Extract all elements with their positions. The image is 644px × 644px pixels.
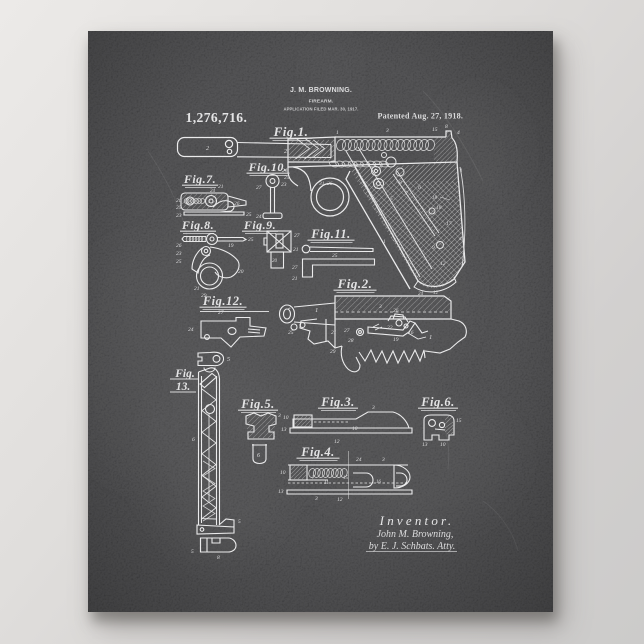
svg-text:21: 21 [293, 247, 299, 253]
svg-text:7: 7 [405, 191, 408, 197]
svg-text:25: 25 [288, 330, 294, 336]
svg-text:3: 3 [371, 405, 375, 411]
svg-text:19: 19 [228, 243, 234, 249]
svg-text:4: 4 [457, 129, 460, 136]
svg-text:Fig.3.: Fig.3. [320, 395, 355, 409]
svg-text:18: 18 [432, 196, 438, 201]
svg-text:6: 6 [192, 437, 195, 443]
svg-text:21: 21 [292, 276, 298, 282]
svg-text:13: 13 [278, 489, 284, 495]
svg-text:23: 23 [281, 182, 287, 188]
svg-text:Fig.: Fig. [174, 368, 195, 380]
svg-text:19: 19 [393, 337, 399, 343]
svg-text:8: 8 [445, 124, 448, 130]
svg-text:2: 2 [284, 149, 287, 155]
svg-text:21: 21 [218, 184, 224, 190]
svg-text:27: 27 [292, 265, 298, 271]
svg-text:24: 24 [210, 189, 216, 194]
svg-text:5: 5 [390, 196, 393, 202]
svg-text:26: 26 [234, 201, 240, 207]
svg-text:Fig.7.: Fig.7. [183, 172, 216, 186]
svg-text:27: 27 [294, 233, 300, 239]
svg-text:16: 16 [376, 480, 382, 485]
svg-text:12: 12 [433, 291, 439, 296]
svg-text:20: 20 [272, 259, 278, 264]
svg-text:12: 12 [334, 439, 340, 445]
svg-text:15: 15 [432, 127, 438, 133]
svg-text:10: 10 [280, 470, 286, 476]
svg-text:10: 10 [283, 415, 289, 421]
svg-text:1: 1 [460, 168, 463, 174]
svg-text:4: 4 [459, 235, 462, 242]
svg-text:18: 18 [436, 205, 442, 211]
svg-text:26: 26 [176, 198, 182, 204]
svg-text:Fig.1.: Fig.1. [273, 124, 309, 139]
svg-text:Fig.5.: Fig.5. [240, 397, 275, 411]
svg-text:24: 24 [418, 292, 424, 297]
svg-text:2: 2 [206, 146, 209, 152]
svg-text:11: 11 [324, 481, 329, 486]
svg-text:9: 9 [432, 245, 435, 251]
svg-text:3: 3 [378, 304, 382, 310]
svg-text:Fig.12.: Fig.12. [202, 294, 243, 308]
svg-text:J. M. BROWNING.: J. M. BROWNING. [290, 87, 352, 94]
svg-text:25: 25 [332, 253, 338, 259]
svg-text:1: 1 [315, 307, 318, 314]
svg-text:Fig.8.: Fig.8. [181, 218, 214, 232]
svg-text:20: 20 [238, 269, 244, 275]
svg-text:John M. Browning,: John M. Browning, [377, 529, 454, 540]
svg-text:Inventor.: Inventor. [379, 513, 455, 528]
svg-text:15: 15 [456, 418, 462, 424]
svg-text:25: 25 [284, 175, 290, 181]
svg-text:16: 16 [408, 330, 414, 336]
svg-text:by E. J. Schbats. Atty.: by E. J. Schbats. Atty. [369, 541, 455, 552]
svg-text:1: 1 [429, 334, 432, 341]
svg-text:8: 8 [399, 180, 402, 186]
svg-text:3: 3 [385, 128, 389, 134]
svg-text:17: 17 [446, 221, 452, 227]
svg-text:27: 27 [256, 185, 262, 191]
svg-text:Fig.6.: Fig.6. [420, 395, 455, 409]
svg-text:28: 28 [348, 338, 354, 344]
svg-text:13: 13 [422, 442, 428, 448]
svg-text:25: 25 [176, 259, 182, 265]
svg-text:10: 10 [352, 426, 358, 432]
svg-text:12: 12 [337, 497, 343, 503]
svg-text:Patented Aug. 27, 1918.: Patented Aug. 27, 1918. [378, 112, 464, 121]
svg-text:21: 21 [194, 286, 200, 292]
svg-text:26: 26 [393, 308, 399, 314]
svg-text:27: 27 [218, 310, 224, 316]
svg-text:25: 25 [248, 237, 254, 243]
svg-text:2: 2 [288, 305, 291, 311]
svg-text:Fig.9.: Fig.9. [243, 218, 276, 232]
svg-text:Fig.11.: Fig.11. [310, 227, 351, 241]
svg-text:1: 1 [383, 239, 386, 245]
svg-text:27: 27 [344, 328, 350, 334]
svg-text:12: 12 [440, 261, 446, 267]
svg-text:31: 31 [318, 181, 325, 187]
svg-text:24: 24 [356, 456, 362, 463]
svg-text:15: 15 [343, 476, 349, 481]
svg-text:22: 22 [387, 325, 393, 331]
svg-text:25: 25 [176, 205, 182, 211]
svg-text:13: 13 [281, 427, 287, 433]
svg-text:10: 10 [440, 442, 446, 448]
svg-text:8: 8 [217, 555, 220, 561]
svg-text:3: 3 [277, 413, 281, 419]
svg-text:26: 26 [327, 181, 333, 187]
svg-text:1: 1 [336, 130, 339, 136]
svg-text:FIREARM.: FIREARM. [309, 99, 334, 105]
svg-text:24: 24 [188, 326, 194, 333]
svg-text:13.: 13. [176, 381, 190, 393]
svg-text:6: 6 [257, 453, 260, 459]
svg-text:5: 5 [227, 357, 230, 363]
svg-text:26: 26 [176, 243, 182, 249]
svg-text:23: 23 [176, 251, 182, 257]
svg-text:Fig.2.: Fig.2. [337, 276, 373, 291]
svg-text:5: 5 [238, 519, 241, 525]
svg-text:APPLICATION FILED MAR. 30, 191: APPLICATION FILED MAR. 30, 1917. [283, 107, 358, 112]
svg-text:21: 21 [331, 330, 337, 336]
svg-text:29: 29 [330, 349, 336, 355]
svg-text:5: 5 [191, 549, 194, 555]
svg-text:3: 3 [381, 457, 385, 463]
svg-text:6: 6 [418, 185, 421, 191]
svg-text:Fig.4.: Fig.4. [300, 445, 335, 459]
svg-text:Fig.10.: Fig.10. [248, 160, 288, 174]
svg-text:3: 3 [314, 496, 318, 502]
svg-text:1,276,716.: 1,276,716. [186, 110, 248, 125]
